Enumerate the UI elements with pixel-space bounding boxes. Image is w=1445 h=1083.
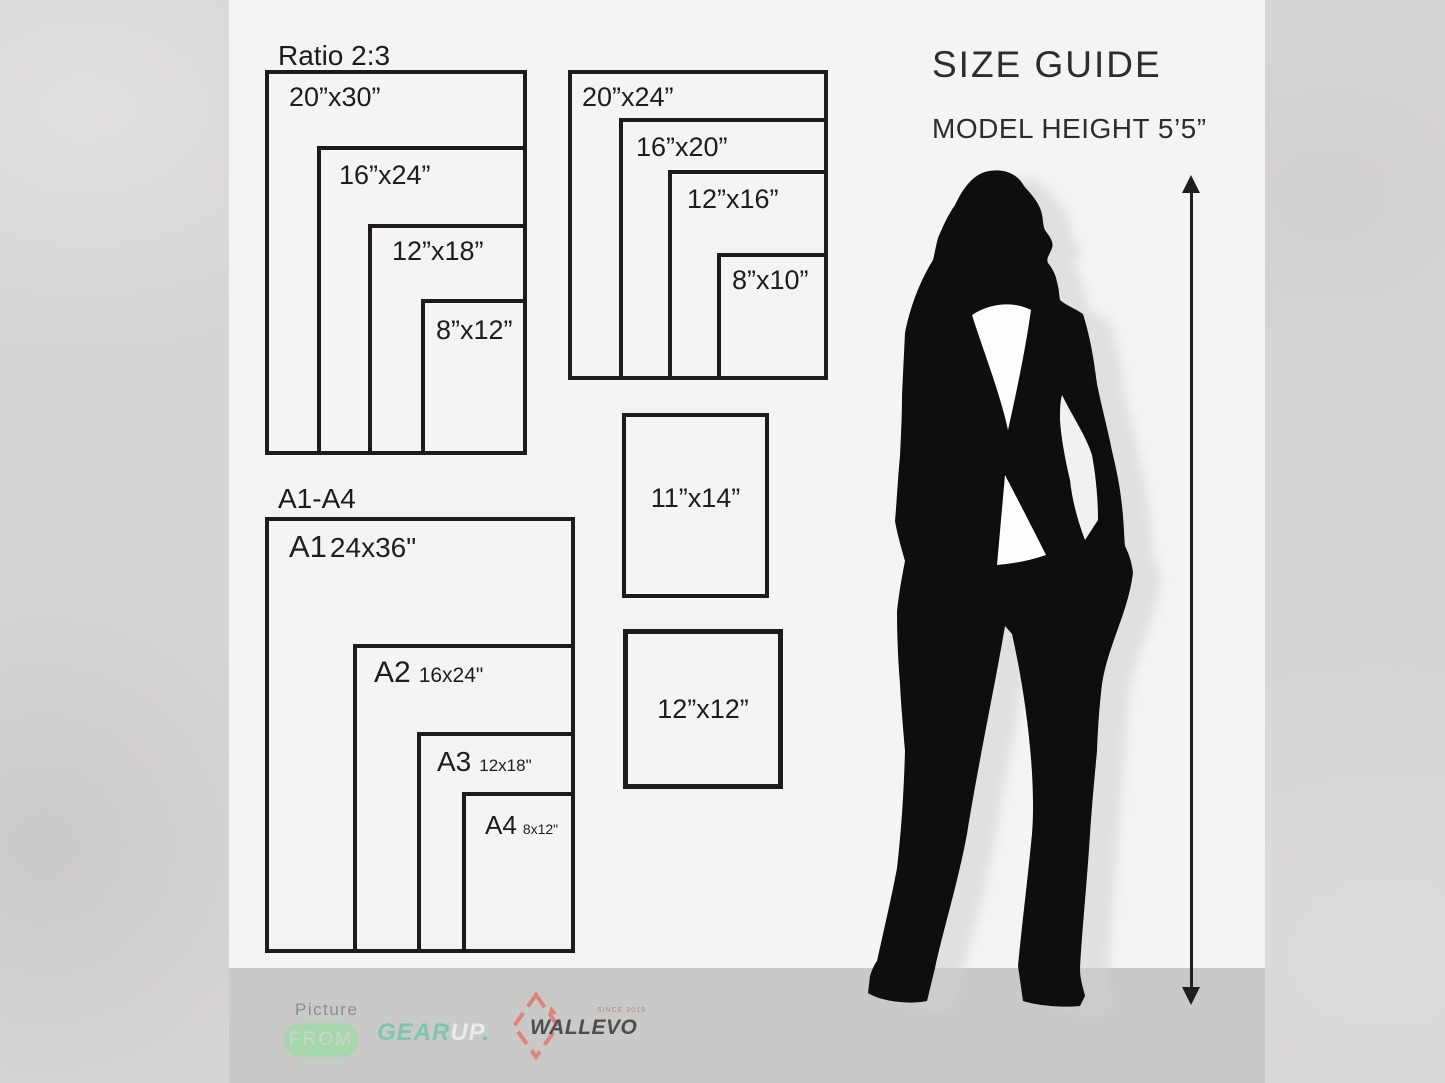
wallevo-logo: WALLEVO — [530, 1016, 637, 1040]
gearup-logo-up: UP — [450, 1019, 482, 1046]
size-rect-12x12: 12”x12” — [623, 629, 783, 789]
size-label-16x20: 16”x20” — [636, 132, 728, 163]
a1-label-row: A1 24x36" — [289, 529, 416, 565]
from-pill-badge: FROM — [284, 1023, 358, 1057]
size-rect-11x14: 11”x14” — [622, 413, 769, 598]
a4-code: A4 — [485, 810, 517, 841]
a1-code: A1 — [289, 529, 327, 565]
size-rect-a4: A4 8x12" — [462, 792, 575, 953]
size-label-8x12: 8”x12” — [436, 315, 513, 346]
page-title: SIZE GUIDE — [932, 44, 1162, 86]
model-height-label: MODEL HEIGHT 5’5” — [932, 113, 1207, 145]
size-guide-canvas: Ratio 2:3 20”x30” 16”x24” 12”x18” 8”x12”… — [0, 0, 1445, 1083]
from-label: FROM — [289, 1029, 353, 1051]
a2-size: 16x24" — [419, 664, 484, 688]
size-label-20x30: 20”x30” — [289, 82, 381, 113]
size-label-12x16: 12”x16” — [687, 184, 779, 215]
gearup-logo-gear: GEAR — [377, 1019, 450, 1046]
a-group-heading: A1-A4 — [278, 483, 356, 515]
arrow-down-icon — [1182, 987, 1200, 1005]
size-rect-8x10: 8”x10” — [717, 253, 828, 380]
size-label-20x24: 20”x24” — [582, 82, 674, 113]
wallevo-since-label: SINCE 2019 — [597, 1007, 646, 1014]
arrow-up-icon — [1182, 175, 1200, 193]
a2-label-row: A2 16x24" — [374, 656, 483, 690]
wallevo-diamond-accent — [548, 1006, 557, 1015]
size-rect-8x12: 8”x12” — [421, 299, 527, 455]
a3-size: 12x18" — [479, 756, 531, 776]
size-label-16x24: 16”x24” — [339, 160, 431, 191]
a4-label-row: A4 8x12" — [485, 810, 558, 841]
gearup-logo: GEARUP. — [377, 1019, 490, 1047]
a4-size: 8x12" — [523, 821, 558, 837]
a1-size: 24x36" — [330, 532, 416, 564]
size-label-11x14: 11”x14” — [651, 483, 741, 514]
picture-label: Picture — [295, 1000, 358, 1020]
size-label-12x12: 12”x12” — [657, 694, 749, 725]
model-silhouette — [858, 164, 1178, 1026]
size-label-12x18: 12”x18” — [392, 236, 484, 267]
size-label-8x10: 8”x10” — [732, 265, 809, 296]
ratio-group-heading: Ratio 2:3 — [278, 40, 390, 72]
height-arrow-line — [1190, 192, 1193, 987]
a2-code: A2 — [374, 656, 411, 690]
a3-code: A3 — [437, 746, 471, 778]
a3-label-row: A3 12x18" — [437, 746, 532, 778]
gearup-logo-dot: . — [483, 1019, 491, 1046]
